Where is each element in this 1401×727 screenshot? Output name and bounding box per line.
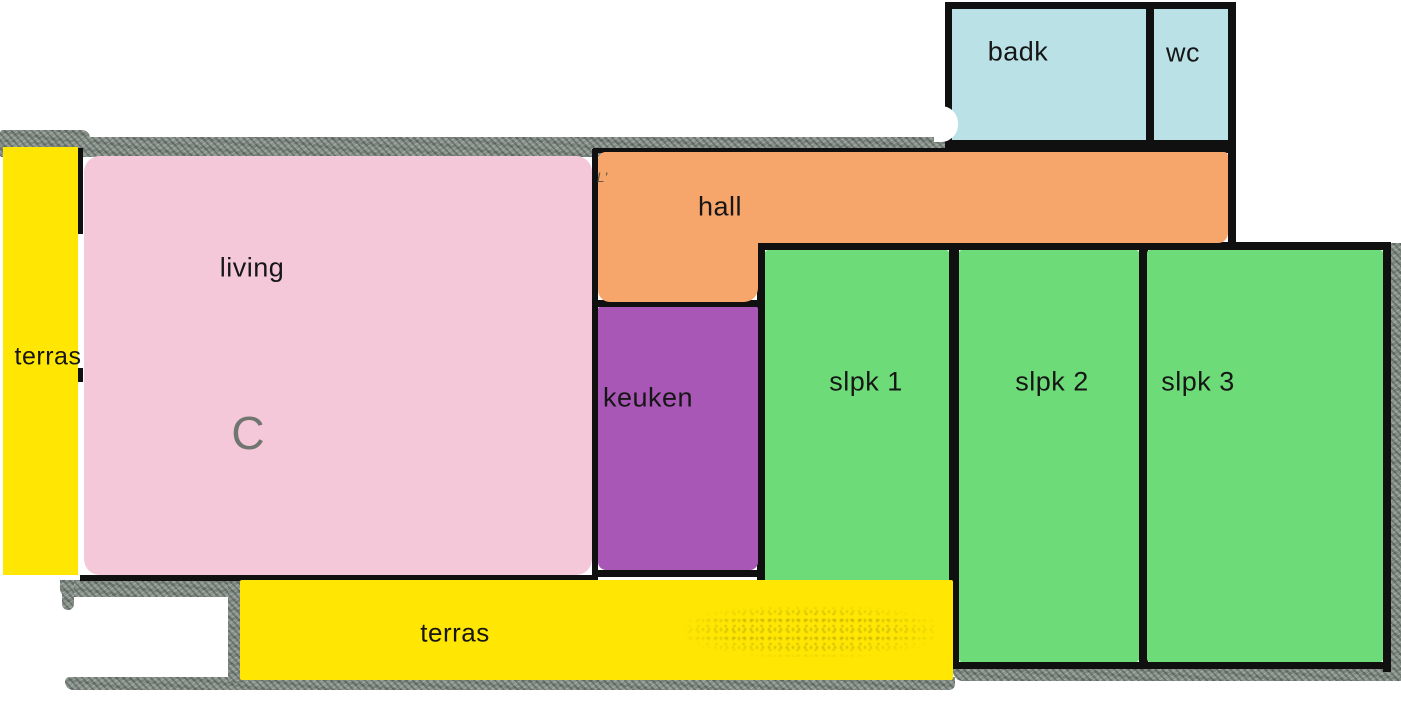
wall-slpk-bottom bbox=[953, 662, 1390, 669]
floorplan-canvas: terras living hall keuken slpk 1 slpk 2 … bbox=[0, 0, 1401, 727]
label-slpk2: slpk 2 bbox=[1015, 367, 1089, 398]
room-hall-leg bbox=[598, 152, 758, 302]
room-slpk2 bbox=[959, 250, 1139, 662]
annotation-c-mark: C bbox=[231, 406, 264, 460]
wall-hall-right bbox=[1228, 2, 1236, 248]
room-keuken bbox=[598, 307, 758, 570]
annotation-l-mark: L' bbox=[597, 169, 607, 185]
wall-stub-left bbox=[60, 580, 240, 597]
label-terras-left: terras bbox=[15, 343, 82, 372]
wall-keuken-slpk1 bbox=[757, 245, 765, 580]
wall-badk-wc-divider bbox=[1146, 2, 1154, 148]
label-hall: hall bbox=[698, 192, 742, 223]
room-badk bbox=[952, 9, 1146, 140]
wall-bottom-bedrooms bbox=[953, 668, 1401, 681]
wall-stub-left-drop bbox=[62, 580, 74, 610]
label-terras-bottom: terras bbox=[420, 618, 489, 649]
room-slpk3 bbox=[1147, 250, 1383, 662]
label-badk: badk bbox=[988, 37, 1049, 68]
label-keuken: keuken bbox=[603, 383, 693, 414]
wall-badk-top bbox=[945, 2, 1236, 9]
wall-top-left-bump bbox=[0, 130, 90, 142]
label-living: living bbox=[220, 253, 285, 284]
wall-hall-bottom bbox=[757, 242, 1390, 250]
room-terras-bottom bbox=[240, 580, 953, 680]
label-slpk1: slpk 1 bbox=[829, 367, 903, 398]
label-slpk3: slpk 3 bbox=[1161, 367, 1235, 398]
label-wc: wc bbox=[1166, 38, 1200, 69]
room-living bbox=[84, 156, 592, 575]
wall-right bbox=[1390, 243, 1401, 681]
room-wc bbox=[1154, 9, 1228, 140]
wall-keuken-bottom bbox=[592, 570, 764, 577]
wall-slpk3-right bbox=[1383, 242, 1391, 672]
wall-terras-living bbox=[78, 148, 83, 234]
wall-badk-bottom bbox=[945, 140, 1236, 148]
faded-handwriting bbox=[685, 605, 935, 657]
